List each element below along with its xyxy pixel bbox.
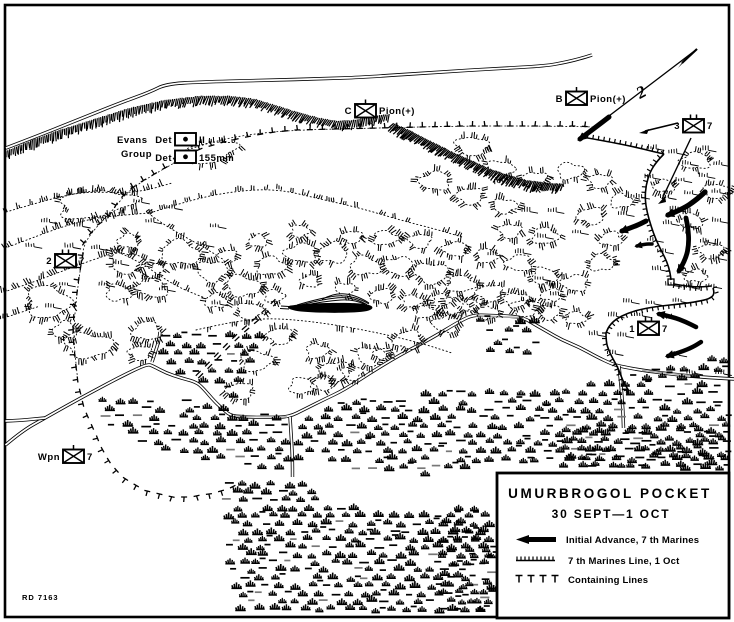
svg-text:1: 1 [629,324,635,335]
svg-text:7 th Marines Line, 1 Oct: 7 th Marines Line, 1 Oct [568,556,680,567]
svg-text:155mm: 155mm [199,153,234,164]
svg-text:UMURBROGOL POCKET: UMURBROGOL POCKET [508,486,712,501]
svg-text:7: 7 [87,452,93,463]
svg-text:7: 7 [662,324,668,335]
svg-text:Group: Group [121,149,152,160]
svg-text:Evans: Evans [117,135,148,146]
svg-text:II: II [199,135,205,146]
svg-text:Pion(+): Pion(+) [379,106,415,117]
svg-text:Wpn: Wpn [38,452,60,463]
svg-text:Containing Lines: Containing Lines [568,575,648,586]
svg-text:Pion(+): Pion(+) [590,94,626,105]
svg-text:B: B [556,94,563,105]
svg-text:7: 7 [707,121,713,132]
svg-text:C: C [345,106,352,117]
svg-text:Initial Advance, 7 th Marines: Initial Advance, 7 th Marines [566,535,699,546]
svg-text:Det: Det [155,153,172,164]
svg-text:30 SEPT—1 OCT: 30 SEPT—1 OCT [552,507,671,521]
svg-text:3: 3 [674,121,680,132]
svg-text:RD 7163: RD 7163 [22,593,59,602]
svg-text:Det: Det [155,135,172,146]
svg-text:2: 2 [46,256,52,267]
svg-text:7: 7 [79,256,85,267]
